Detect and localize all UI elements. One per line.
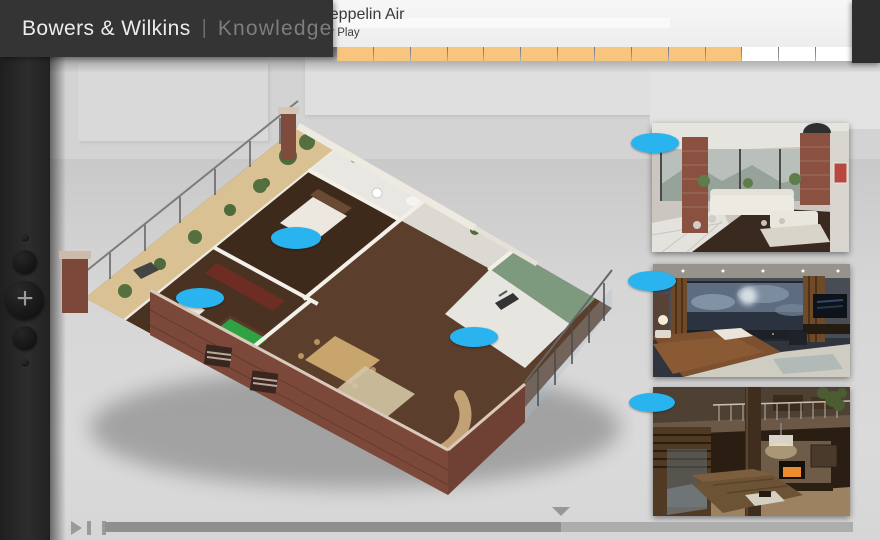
brand-logo: Bowers & Wilkins | Knowledge bbox=[0, 0, 333, 57]
chapter-segment[interactable] bbox=[779, 47, 815, 61]
floorplan-illustration bbox=[55, 98, 635, 510]
bedroom-evening-image bbox=[653, 264, 850, 377]
lounge-fireplace-image bbox=[653, 387, 850, 516]
chapter-segment[interactable] bbox=[558, 47, 594, 61]
speaker-marker-floorplan-kitchen-bar[interactable] bbox=[176, 288, 224, 308]
chapter-segment[interactable] bbox=[448, 47, 484, 61]
device-sidebar: + bbox=[0, 0, 50, 540]
speaker-marker-floorplan-living-room[interactable] bbox=[450, 327, 498, 347]
chapter-segment[interactable] bbox=[816, 47, 852, 61]
speaker-marker-photo-lounge[interactable] bbox=[629, 393, 675, 412]
brand-name: Bowers & Wilkins bbox=[22, 17, 191, 41]
chapter-segment[interactable] bbox=[411, 47, 447, 61]
play-button[interactable] bbox=[71, 521, 82, 535]
volume-dot-top-icon[interactable] bbox=[21, 234, 29, 242]
chapter-segment[interactable] bbox=[632, 47, 668, 61]
speaker-marker-floorplan-bedroom[interactable] bbox=[271, 227, 321, 249]
brand-section: Knowledge bbox=[218, 17, 333, 41]
app-window: + Zeppelin Air Air Play Bowers & Wilkins… bbox=[0, 0, 880, 540]
chapter-segment[interactable] bbox=[742, 47, 778, 61]
chapter-progress-bar[interactable] bbox=[337, 47, 852, 61]
brand-separator: | bbox=[202, 17, 207, 40]
backdrop-wall-panel bbox=[650, 71, 880, 129]
chapter-segment[interactable] bbox=[484, 47, 520, 61]
timeline-progress bbox=[105, 522, 561, 532]
chapter-segment[interactable] bbox=[337, 47, 373, 61]
chapter-segment[interactable] bbox=[595, 47, 631, 61]
chapter-segment[interactable] bbox=[521, 47, 557, 61]
chapter-segment[interactable] bbox=[374, 47, 410, 61]
volume-up-button[interactable] bbox=[13, 250, 37, 274]
header-corner-block bbox=[852, 0, 880, 63]
volume-down-button[interactable] bbox=[13, 326, 37, 350]
chapter-segment[interactable] bbox=[669, 47, 705, 61]
pause-button[interactable] bbox=[87, 521, 106, 535]
speaker-marker-photo-bedroom[interactable] bbox=[628, 271, 676, 291]
volume-dot-bottom-icon[interactable] bbox=[21, 359, 29, 367]
photo-lounge-fireplace[interactable] bbox=[653, 387, 850, 516]
playhead-marker-icon[interactable] bbox=[552, 507, 570, 516]
photo-bedroom-evening[interactable] bbox=[653, 264, 850, 377]
speaker-marker-photo-loft[interactable] bbox=[631, 133, 679, 153]
timeline-scrubber[interactable] bbox=[105, 522, 853, 532]
photo-loft-living-room[interactable] bbox=[652, 123, 849, 252]
volume-plus-button[interactable]: + bbox=[6, 281, 44, 319]
loft-living-room-image bbox=[652, 123, 849, 252]
chapter-segment[interactable] bbox=[706, 47, 742, 61]
